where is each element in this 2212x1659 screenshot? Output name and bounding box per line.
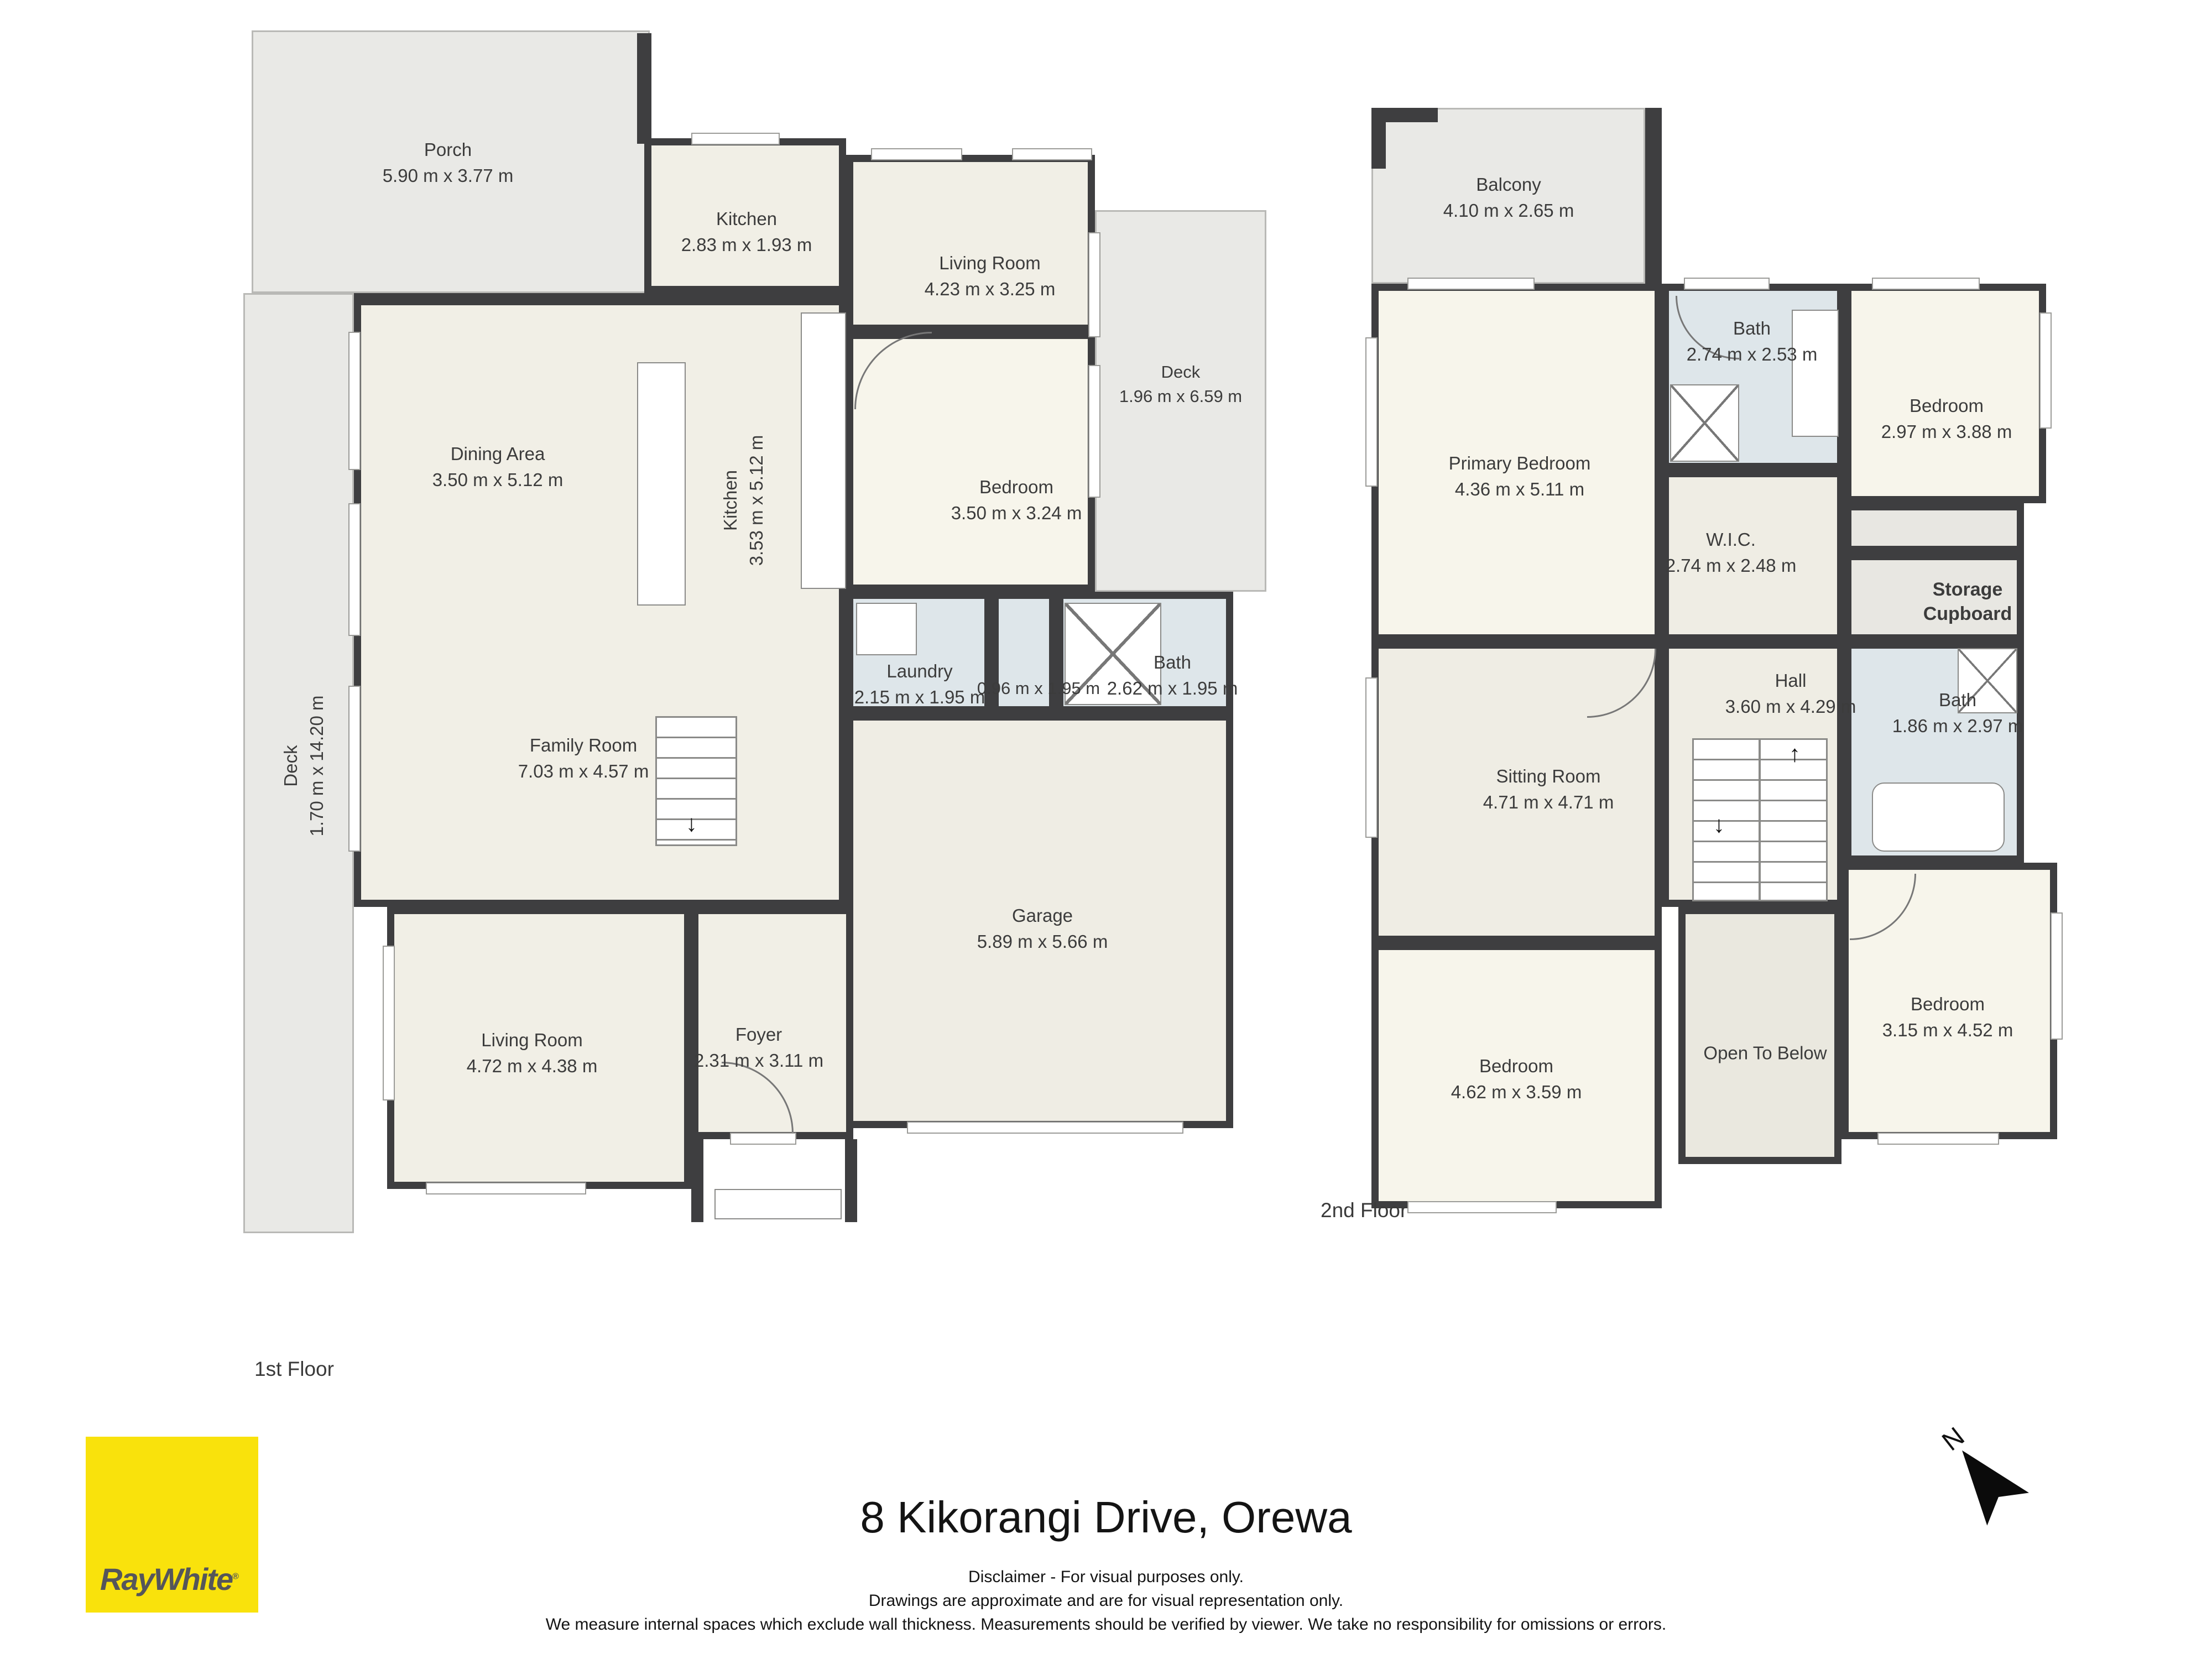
window: [1684, 278, 1770, 290]
stairs-up-arrow: ↑: [1789, 742, 1801, 765]
window: [1365, 337, 1378, 487]
label-foyer: Foyer2.31 m x 3.11 m: [694, 1022, 823, 1074]
disclaimer-line2: Drawings are approximate and are for vis…: [276, 1589, 1936, 1613]
svg-text:N: N: [1937, 1422, 1970, 1457]
label-balcony: Balcony4.10 m x 2.65 m: [1443, 172, 1574, 224]
label-kitchen-top: Kitchen2.83 m x 1.93 m: [681, 206, 812, 258]
window: [348, 686, 361, 852]
wall-stub: [1645, 108, 1662, 290]
kitchen-counter: [801, 312, 846, 589]
label-sitting: Sitting Room4.71 m x 4.71 m: [1483, 764, 1614, 816]
wall-stub: [845, 1139, 857, 1222]
window: [1012, 148, 1092, 160]
label-living-bottom: Living Room4.72 m x 4.38 m: [467, 1027, 598, 1079]
window: [348, 332, 361, 470]
label-porch: Porch5.90 m x 3.77 m: [383, 137, 514, 189]
window: [1872, 278, 1980, 290]
room-openplan-dining-family: [354, 293, 846, 907]
floorplan-canvas: ↓ Porch5.90 m x 3.77 m Kitchen2.83 m x 1…: [0, 0, 2212, 1659]
label-bedroom-topright: Bedroom2.97 m x 3.88 m: [1881, 393, 2012, 445]
stairs-divider: [1759, 738, 1761, 901]
garage-door: [907, 1121, 1183, 1134]
label-bath-1f: Bath2.62 m x 1.95 m: [1107, 650, 1238, 702]
room-living-top: [846, 155, 1095, 332]
label-living-top: Living Room4.23 m x 3.25 m: [925, 251, 1056, 302]
window: [348, 503, 361, 636]
floor1-label: 1st Floor: [254, 1358, 334, 1381]
window: [691, 133, 780, 145]
raywhite-logo-text: RayWhite®: [100, 1561, 239, 1597]
label-deck-left: Deck1.70 m x 14.20 m: [278, 696, 330, 837]
entry-step: [714, 1189, 842, 1219]
label-wic: W.I.C.2.74 m x 2.48 m: [1666, 527, 1797, 579]
window: [2039, 312, 2052, 429]
kitchen-island: [637, 362, 686, 606]
shower: [1670, 384, 1739, 462]
registered-mark: ®: [232, 1572, 239, 1581]
window: [871, 148, 962, 160]
window: [1088, 232, 1100, 337]
wall-stub: [691, 1139, 703, 1222]
room-wardrobe: [1844, 503, 2024, 553]
property-address-title: 8 Kikorangi Drive, Orewa: [608, 1492, 1604, 1543]
bathtub: [1872, 782, 2005, 852]
label-wc: 0.96 m x 1.95 m: [977, 676, 1100, 701]
wall-stub: [1371, 108, 1386, 169]
label-garage: Garage5.89 m x 5.66 m: [977, 903, 1108, 955]
window: [426, 1182, 586, 1194]
label-storage-cupboard: Storage Cupboard: [1898, 577, 2037, 626]
label-hall: Hall3.60 m x 4.29 m: [1725, 668, 1856, 720]
label-deck-right: Deck1.96 m x 6.59 m: [1119, 360, 1242, 409]
window: [1407, 1201, 1557, 1213]
disclaimer-line3: We measure internal spaces which exclude…: [276, 1613, 1936, 1636]
laundry-appliance: [856, 603, 917, 655]
north-arrow: N: [1919, 1407, 2046, 1543]
label-open-to-below: Open To Below: [1703, 1041, 1827, 1067]
window: [1088, 365, 1100, 498]
floor2-label: 2nd Floor: [1321, 1199, 1407, 1222]
window: [383, 946, 395, 1100]
label-bedroom-bottomright: Bedroom3.15 m x 4.52 m: [1882, 992, 2013, 1044]
window: [1877, 1133, 1999, 1145]
room-open-to-below: [1678, 907, 1841, 1164]
label-laundry: Laundry2.15 m x 1.95 m: [854, 659, 985, 711]
disclaimer-line1: Disclaimer - For visual purposes only.: [276, 1565, 1936, 1589]
label-family: Family Room7.03 m x 4.57 m: [518, 733, 649, 785]
front-door-opening: [730, 1133, 796, 1145]
north-arrow-icon: N: [1923, 1411, 2029, 1525]
label-bath-top: Bath2.74 m x 2.53 m: [1687, 316, 1818, 368]
raywhite-logo: RayWhite®: [86, 1437, 258, 1613]
label-primary-bedroom: Primary Bedroom4.36 m x 5.11 m: [1449, 451, 1591, 503]
label-bath-right: Bath1.86 m x 2.97 m: [1892, 687, 2023, 739]
label-bedroom-mid: Bedroom3.50 m x 3.24 m: [951, 474, 1082, 526]
disclaimer-text: Disclaimer - For visual purposes only. D…: [276, 1565, 1936, 1636]
label-bedroom-bottomleft: Bedroom4.62 m x 3.59 m: [1451, 1053, 1582, 1105]
label-dining: Dining Area3.50 m x 5.12 m: [432, 441, 564, 493]
wall-stub: [637, 33, 651, 144]
window: [2051, 912, 2063, 1040]
window: [1407, 278, 1535, 290]
stairs-down-arrow: ↓: [1713, 813, 1725, 836]
stairs-down-arrow: ↓: [686, 812, 697, 835]
label-kitchen-main: Kitchen3.53 m x 5.12 m: [718, 435, 770, 566]
window: [1365, 677, 1378, 838]
